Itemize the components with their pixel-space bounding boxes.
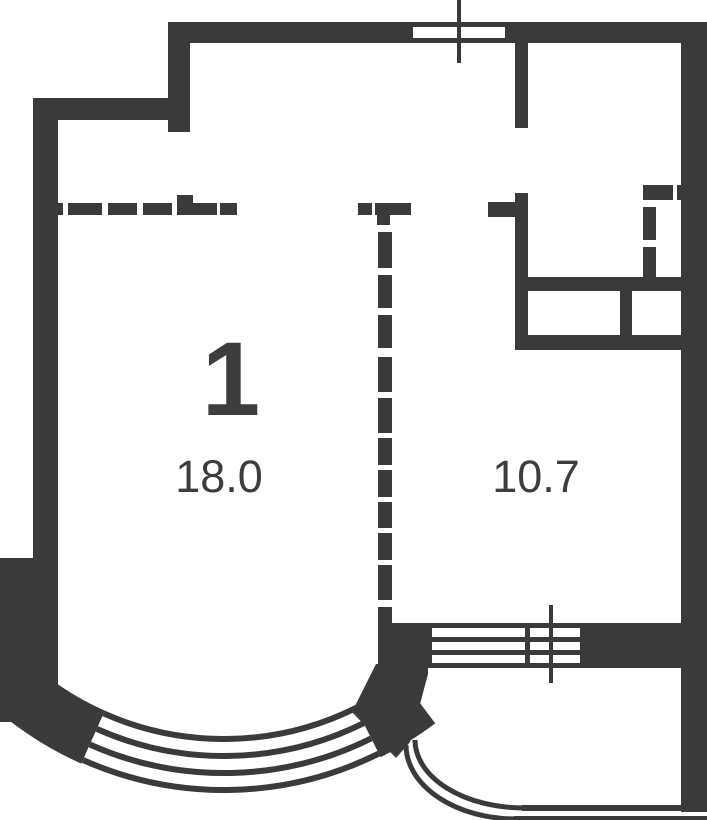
dash	[378, 357, 392, 392]
bottom-window-group	[432, 623, 580, 668]
dash	[677, 185, 685, 200]
dash	[643, 185, 673, 200]
bottom-window-frame-line	[432, 637, 580, 642]
balcony-group	[406, 740, 707, 820]
unit-number-label: 1	[202, 321, 260, 438]
balcony-glazing-outer-line	[514, 816, 707, 820]
lower-partition-wall	[515, 193, 528, 350]
walls-group	[0, 22, 707, 812]
dash	[108, 203, 137, 215]
upper-partition-wall	[515, 43, 528, 128]
dash	[643, 207, 656, 240]
closet-top-wall	[515, 277, 707, 291]
dash	[378, 502, 392, 528]
dash	[378, 533, 392, 560]
dashed-partition-vertical	[378, 232, 392, 600]
floor-plan: 1 18.0 10.7	[0, 0, 707, 820]
partition-wall-stub	[488, 202, 515, 217]
dash	[143, 203, 172, 215]
dash	[68, 203, 102, 215]
floor-plan-canvas: 1 18.0 10.7	[0, 0, 707, 820]
room-area-label-18: 18.0	[175, 451, 263, 502]
dash	[378, 398, 392, 433]
dash	[58, 203, 63, 215]
bottom-window-frame-line	[432, 663, 580, 668]
bottom-window-axis-line	[549, 605, 553, 683]
balcony-glazing-inner-line	[522, 805, 690, 811]
dashed-partition-horizontal	[58, 195, 411, 225]
dash-tee	[375, 203, 411, 215]
closet-bottom-wall	[515, 335, 685, 350]
left-wall-thick-block	[0, 558, 58, 722]
balcony-side-wall-stub	[378, 607, 392, 700]
closet-divider-wall	[620, 291, 632, 335]
dash	[378, 470, 392, 497]
dash-tee-stub	[377, 215, 390, 225]
dashed-shaft-corner	[643, 185, 685, 277]
dash	[358, 203, 372, 215]
bottom-window-mullion	[525, 628, 530, 663]
dash	[177, 203, 217, 215]
dash	[220, 203, 237, 215]
bottom-window-frame-line	[432, 650, 580, 655]
dash	[378, 438, 392, 465]
dash	[378, 315, 392, 348]
room-area-label-10-7: 10.7	[492, 451, 580, 502]
dash	[378, 275, 392, 308]
dash	[643, 247, 656, 277]
top-window-axis-line	[457, 0, 461, 63]
dash	[378, 565, 392, 600]
bottom-window-frame-line	[432, 623, 580, 628]
bottom-wall-right-segment	[580, 623, 685, 668]
right-wall	[681, 43, 707, 812]
balcony-glazing-inner-arc	[415, 740, 524, 808]
dash-bump	[177, 195, 193, 203]
dash	[378, 232, 392, 268]
bay-wall-group	[26, 664, 428, 790]
